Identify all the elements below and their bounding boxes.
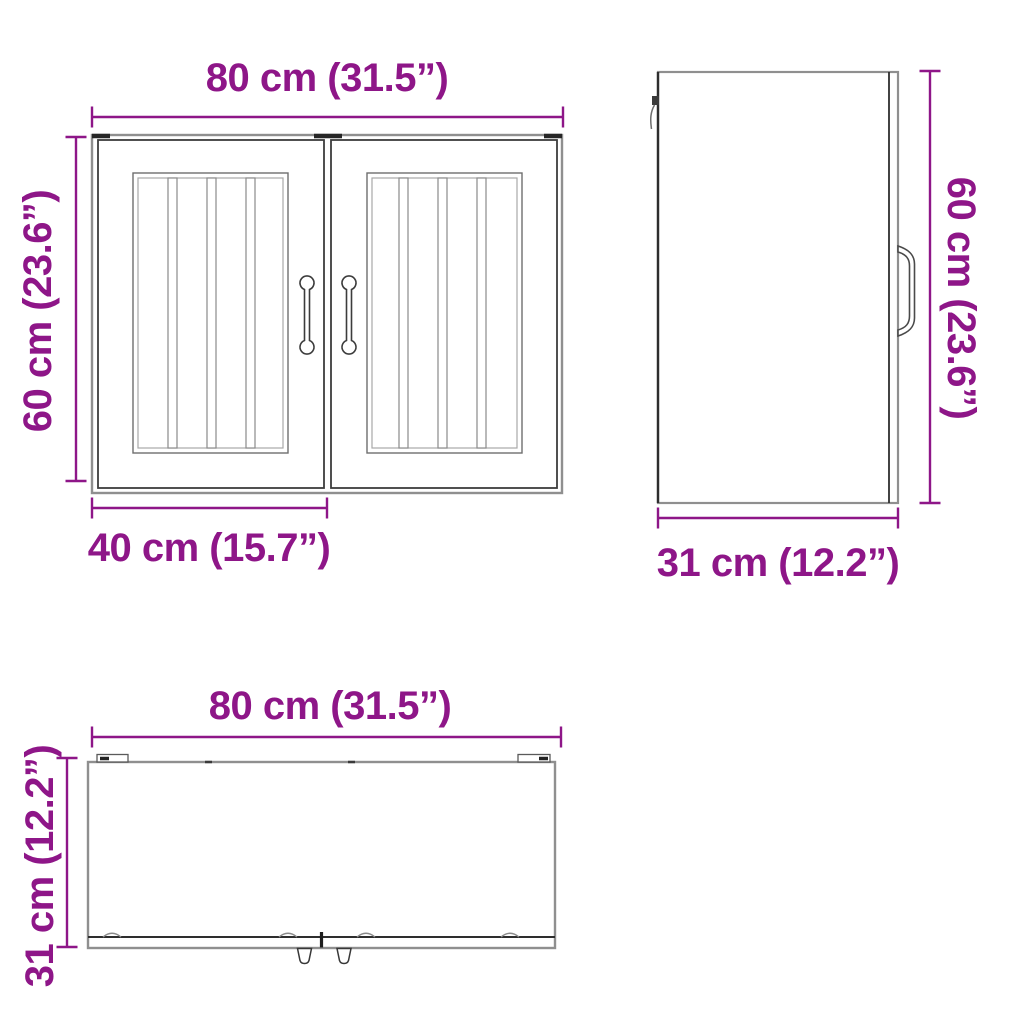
side-outline bbox=[658, 72, 898, 503]
top-view-left-handle bbox=[298, 949, 312, 964]
front-height-dimension-line bbox=[66, 137, 87, 481]
side-handle bbox=[898, 246, 915, 336]
top-depth-label: 31 cm (12.2”) bbox=[19, 745, 61, 988]
side-view-drawing bbox=[651, 72, 915, 503]
side-depth-dimension-line bbox=[658, 508, 898, 529]
top-width-label: 80 cm (31.5”) bbox=[209, 685, 452, 727]
front-width-label: 80 cm (31.5”) bbox=[206, 57, 449, 99]
top-view-right-handle bbox=[337, 949, 351, 964]
top-view-drawing bbox=[88, 755, 555, 964]
front-height-label: 60 cm (23.6”) bbox=[17, 190, 59, 433]
side-height-dimension-line bbox=[920, 71, 941, 503]
front-door-width-label: 40 cm (15.7”) bbox=[88, 527, 331, 569]
side-depth-label: 31 cm (12.2”) bbox=[657, 542, 900, 584]
top-width-dimension-line bbox=[92, 727, 561, 748]
top-outline bbox=[88, 762, 555, 948]
front-width-dimension-line bbox=[92, 107, 563, 128]
front-view-drawing bbox=[92, 135, 562, 493]
front-door-width-dimension-line bbox=[92, 498, 327, 519]
wall-mount-bracket bbox=[652, 96, 659, 105]
dimension-diagram: 80 cm (31.5”) 60 cm (23.6”) 40 cm (15.7”… bbox=[0, 0, 1024, 1024]
side-height-label: 60 cm (23.6”) bbox=[940, 177, 982, 420]
cabinet-line-drawing bbox=[0, 0, 1024, 1024]
wall-mount-bracket-hook bbox=[651, 105, 655, 129]
